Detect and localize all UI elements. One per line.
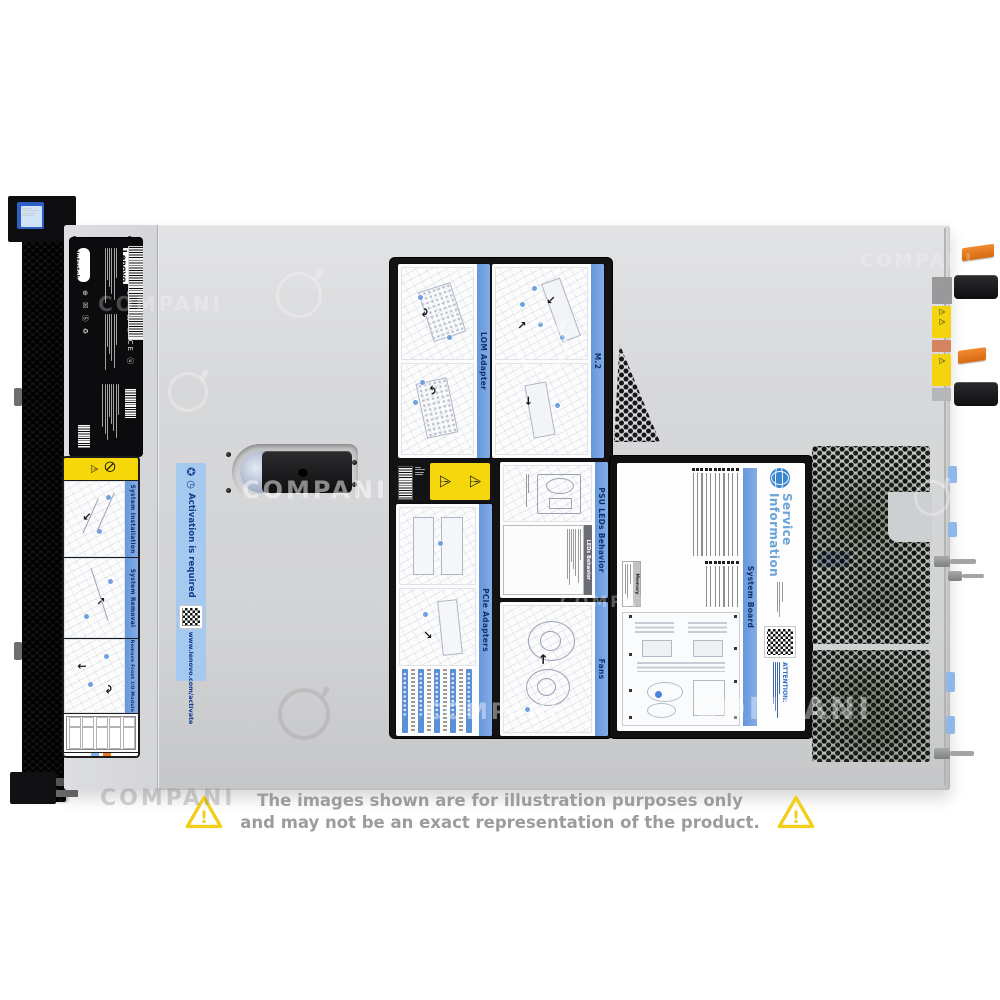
latch-lock-dot: [298, 467, 308, 477]
callout-list-col1: [622, 468, 740, 556]
riser-kit-bar: [466, 669, 472, 733]
lenovo-logo-text: Lenovo: [119, 250, 128, 282]
memory-table: Memory: [622, 561, 641, 607]
serial-barcode-strip: [128, 246, 144, 340]
m2-illustration-remove: ↘↖: [495, 267, 588, 360]
cover-seam-highlight: [158, 225, 159, 790]
warning-triangle-icon: !: [184, 794, 224, 830]
badge-print: [21, 206, 42, 227]
fans-title: Fans: [595, 602, 608, 736]
riser-kit-bar: [402, 669, 408, 733]
warning-triangle-icon: !: [776, 794, 816, 830]
psu2-handle[interactable]: [954, 382, 998, 406]
intertek-text: Intertek: [73, 251, 80, 278]
warning-triangle-icon: ⚠: [938, 352, 946, 371]
disclaimer-line1: The images shown are for illustration pu…: [240, 790, 759, 812]
system-board-band: System Board: [743, 468, 757, 726]
disclaimer-line2: and may not be an exact representation o…: [240, 812, 759, 834]
svg-text:!: !: [200, 808, 208, 827]
riser-kit-bar: [434, 669, 440, 733]
legend-orange-swatch: [103, 753, 111, 756]
psu-table-header: LEDs Behavior: [584, 525, 592, 595]
activation-label: ✪ ◷ Activation is required www.lenovo.co…: [176, 463, 206, 681]
screw: [352, 482, 357, 487]
lom-illustration-remove: ↷: [401, 267, 474, 360]
screw: [226, 488, 231, 493]
psu1-handle[interactable]: [954, 275, 998, 299]
screw: [352, 460, 357, 465]
legend-blue-swatch: [91, 753, 99, 756]
thumbscrew[interactable]: [934, 556, 950, 567]
psu-rating-label: [932, 277, 952, 304]
riser-kit-bar: [450, 669, 456, 733]
system-installation-illustration: ↘: [64, 481, 125, 557]
thumbscrew[interactable]: [934, 748, 950, 759]
service-information-label: ServiceInformation ATTENTION: System Boa…: [617, 463, 805, 731]
rear-blue-clip[interactable]: [946, 672, 955, 692]
system-board-diagram: [622, 612, 740, 726]
cert-icon-row2: ⊕ ☒ Ⓢ ♻: [80, 290, 90, 336]
svg-text:!: !: [792, 808, 800, 827]
psu1-pull-tab[interactable]: [962, 244, 994, 261]
psu-warning-label2: ⚠: [932, 354, 951, 386]
front-label-legend: [64, 752, 138, 756]
cert-barcode: [125, 388, 136, 418]
psu-info-label: [932, 388, 951, 401]
thumbscrew-shaft: [962, 574, 984, 578]
product-photo: Lenovo ◉ ♻ △ Ⓕ CE ⓤ Intertek ⊕ ☒ Ⓢ ♻ ⃠ ⚠…: [0, 0, 1000, 1000]
front-label-led-table: [64, 713, 138, 752]
remove-front-io-illustration: ↷↓: [64, 639, 125, 713]
riser-kit-bar: [418, 669, 424, 733]
intertek-mark: Intertek: [77, 248, 90, 282]
cert-text-block: [104, 248, 118, 308]
attention-title: ATTENTION:: [781, 662, 788, 726]
m2-illustration-install: →: [495, 363, 588, 456]
attention-block: ATTENTION:: [772, 662, 789, 726]
vent-blue-component: [818, 552, 850, 567]
callout-list-col2: [641, 561, 740, 607]
rear-vent-upper: [812, 446, 930, 644]
service-url-block: [776, 582, 784, 622]
lom-adapter-label: LOM Adapter ↷ ↶: [398, 264, 490, 458]
psu-hot-surface-label: [932, 340, 951, 352]
panel-barcode: [398, 466, 413, 500]
globe-icon: [770, 468, 790, 488]
system-removal-illustration: ↖: [64, 558, 125, 638]
cert-text-block: [101, 384, 120, 446]
section-title-remove-front-io: Remove Front I/O Module: [125, 639, 138, 713]
psu2-pull-tab[interactable]: [958, 347, 986, 364]
bezel-latch-nub: [14, 388, 22, 406]
lom-illustration-install: ↶: [401, 363, 474, 456]
disclaimer-text: The images shown are for illustration pu…: [240, 790, 759, 835]
pcie-riser-kit-list: [399, 669, 476, 733]
front-service-label: ⃠ ⚠ System Installation ↘ System Removal…: [64, 458, 138, 756]
warning-triangle-icon: ⚠: [437, 475, 452, 488]
section-title-system-installation: System Installation: [125, 481, 138, 557]
bezel-latch-nub: [14, 642, 22, 660]
m2-label: M.2 ↘↖ →: [492, 264, 604, 458]
rear-vent-lower: [812, 650, 930, 762]
fan-remove-arrow: ←: [536, 654, 549, 665]
warning-triangle-icon: ⚠: [938, 313, 946, 332]
service-information-title: ServiceInformation: [767, 493, 792, 577]
disclaimer: ! The images shown are for illustration …: [0, 790, 1000, 835]
memory-table-header: Memory: [633, 562, 640, 606]
activation-title: Activation is required: [186, 493, 196, 598]
pcie-adapters-title: PCIe Adapters: [479, 504, 492, 736]
m2-title: M.2: [591, 264, 604, 458]
rear-blue-clip[interactable]: [948, 522, 957, 537]
front-bezel: [22, 216, 66, 802]
psu-led-table: LEDs Behavior: [503, 525, 592, 595]
screw: [226, 452, 231, 457]
rear-blue-clip[interactable]: [948, 466, 957, 483]
cert-text-block: [104, 314, 118, 376]
psu-warning-label: ⚠ ⚠: [932, 306, 951, 338]
activation-url: www.lenovo.com/activate: [187, 632, 195, 725]
psu-leds-title: PSU LEDs Behavior: [595, 462, 608, 598]
pcie-adapters-label: PCIe Adapters ↗: [396, 504, 492, 736]
panel-warning-sticker: ⚠ ⚠: [430, 463, 490, 500]
warranty-seal-icon: ✪: [185, 467, 198, 476]
rear-blue-clip[interactable]: [946, 716, 955, 734]
fans-label: Fans ←: [500, 602, 608, 736]
rack-ear-badge: [17, 202, 44, 229]
thumbscrew-shaft: [950, 751, 974, 756]
warning-triangle-icon: ⚠: [88, 465, 98, 474]
activation-qr-code: [180, 606, 202, 628]
vent-notch: [888, 492, 932, 542]
thumbscrew[interactable]: [948, 571, 962, 581]
thumbscrew-shaft: [950, 559, 976, 564]
lom-adapter-title: LOM Adapter: [477, 264, 490, 458]
warning-triangle-icon: ⚠: [467, 475, 482, 488]
clock-icon: ◷: [186, 480, 197, 489]
psu-illustration: [503, 465, 592, 522]
service-qr-code: [765, 627, 795, 657]
pcie-illustration-riser1: [399, 507, 476, 585]
front-label-warning-block: ⃠ ⚠: [64, 458, 138, 480]
cert-barcode2: [78, 424, 90, 448]
cover-latch-handle[interactable]: [262, 451, 352, 493]
section-title-system-removal: System Removal: [125, 558, 138, 638]
psu-leds-label: PSU LEDs Behavior LEDs Behavior: [500, 462, 608, 598]
pcie-illustration-riser2: ↗: [399, 588, 476, 666]
panel-warning-smallprint: [415, 466, 427, 498]
fans-illustration: ←: [503, 605, 592, 733]
